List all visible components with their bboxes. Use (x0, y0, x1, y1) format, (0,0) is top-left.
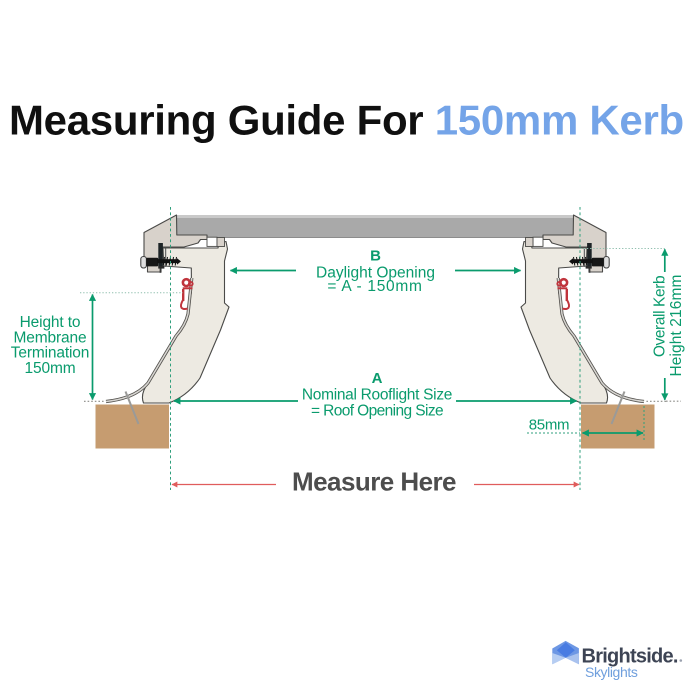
svg-text:Measuring Guide For 150mm Kerb: Measuring Guide For 150mm Kerb (9, 97, 684, 144)
svg-text:150mm: 150mm (25, 360, 76, 377)
svg-text:Nominal Rooflight Size: Nominal Rooflight Size (302, 387, 452, 404)
svg-text:Overall Kerb: Overall Kerb (652, 276, 669, 357)
svg-text:A: A (372, 370, 383, 387)
svg-text:B: B (370, 248, 381, 265)
svg-text:Skylights: Skylights (585, 664, 638, 680)
svg-text:= A - 150mm: = A - 150mm (327, 278, 422, 295)
svg-text:Height 216mm: Height 216mm (668, 275, 685, 377)
svg-text:Measure Here: Measure Here (292, 467, 456, 497)
svg-text:85mm: 85mm (529, 416, 569, 433)
svg-text:= Roof Opening Size: = Roof Opening Size (311, 402, 443, 419)
